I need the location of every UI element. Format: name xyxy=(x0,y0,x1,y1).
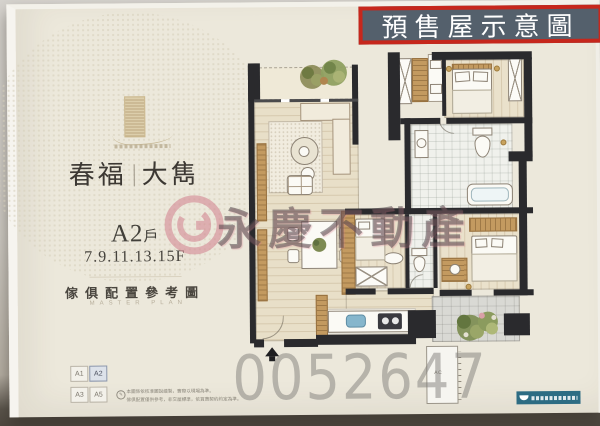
closet-x xyxy=(355,266,387,286)
presale-stamp: 預售屋示意圖 xyxy=(358,5,600,45)
badge-microtext xyxy=(531,395,577,399)
project-title-left: 春福 xyxy=(69,160,127,189)
plan-caption-en: MASTER PLAN xyxy=(31,299,246,307)
wall-terrace-block xyxy=(504,313,530,335)
wall xyxy=(440,290,472,296)
coffee-table-decor xyxy=(299,146,310,157)
wall xyxy=(388,288,434,294)
unit-name-main: A2 xyxy=(111,220,144,247)
pillow xyxy=(491,238,504,248)
wall xyxy=(346,288,376,294)
project-title-right: 大雋 xyxy=(142,160,200,189)
duvet xyxy=(452,90,492,114)
logo-microtext xyxy=(114,144,170,148)
wall xyxy=(352,65,359,145)
wall xyxy=(519,159,528,295)
nightstand-lamp xyxy=(494,65,500,71)
unit-name-suffix: 戶 xyxy=(143,229,158,245)
wall xyxy=(432,51,532,60)
wall xyxy=(442,58,446,116)
unit-grid-cell-a3: A3 xyxy=(70,387,88,403)
bathtub-inner xyxy=(471,187,509,201)
desk-chair xyxy=(449,264,460,275)
badge-wave-icon xyxy=(519,395,528,400)
photo-scene: { "stamp": { "label": "預售屋示意圖" }, "brand… xyxy=(0,0,600,426)
pillow xyxy=(473,71,488,82)
pillow xyxy=(475,238,488,248)
unit-grid-cell-a5: A5 xyxy=(89,387,107,403)
duvet xyxy=(471,253,517,281)
entry-fixture xyxy=(430,84,442,94)
nightstand-lamp xyxy=(446,66,452,72)
unit-grid-label: A2 xyxy=(94,370,103,377)
brochure-paper: 預售屋示意圖 春福大雋 A2戶 7.9.11.13.15F 傢俱配置參考圖 MA… xyxy=(6,0,600,417)
closet-x xyxy=(508,55,522,101)
vanity-basin xyxy=(416,138,426,148)
bedroom3-closet xyxy=(469,217,517,231)
kitchen-sink xyxy=(346,315,366,328)
fridge-cabinet xyxy=(316,295,328,337)
unit-grid-label: A3 xyxy=(75,391,84,398)
wall-service-core xyxy=(388,52,401,140)
unit-grid-label: A5 xyxy=(94,391,103,398)
balcony-plants xyxy=(298,53,350,97)
dresser xyxy=(412,58,428,102)
watermark-serial-number: 0052647 xyxy=(232,340,488,415)
presale-stamp-label: 預售屋示意圖 xyxy=(381,5,579,44)
unit-grid-cell-a1: A1 xyxy=(70,366,88,382)
stove-burner xyxy=(392,317,399,324)
title-divider xyxy=(134,164,135,186)
project-title: 春福大雋 xyxy=(27,153,242,192)
watermark-agency-text: 永慶不動產 xyxy=(217,192,472,258)
disclaimer-icon: ✎ xyxy=(116,390,125,399)
sofa-vertical xyxy=(332,119,350,175)
developer-badge xyxy=(516,391,580,405)
toilet-tank xyxy=(472,128,492,136)
kitchen-counter xyxy=(328,310,416,333)
stove-burner xyxy=(382,317,389,324)
entry-fixture xyxy=(430,60,442,69)
wall xyxy=(524,57,533,157)
wall xyxy=(446,117,532,124)
unit-grid-cell-a2-selected: A2 xyxy=(89,366,107,382)
fixture-dot xyxy=(500,139,506,145)
unit-grid-label: A1 xyxy=(75,370,84,377)
pillow xyxy=(455,71,471,82)
